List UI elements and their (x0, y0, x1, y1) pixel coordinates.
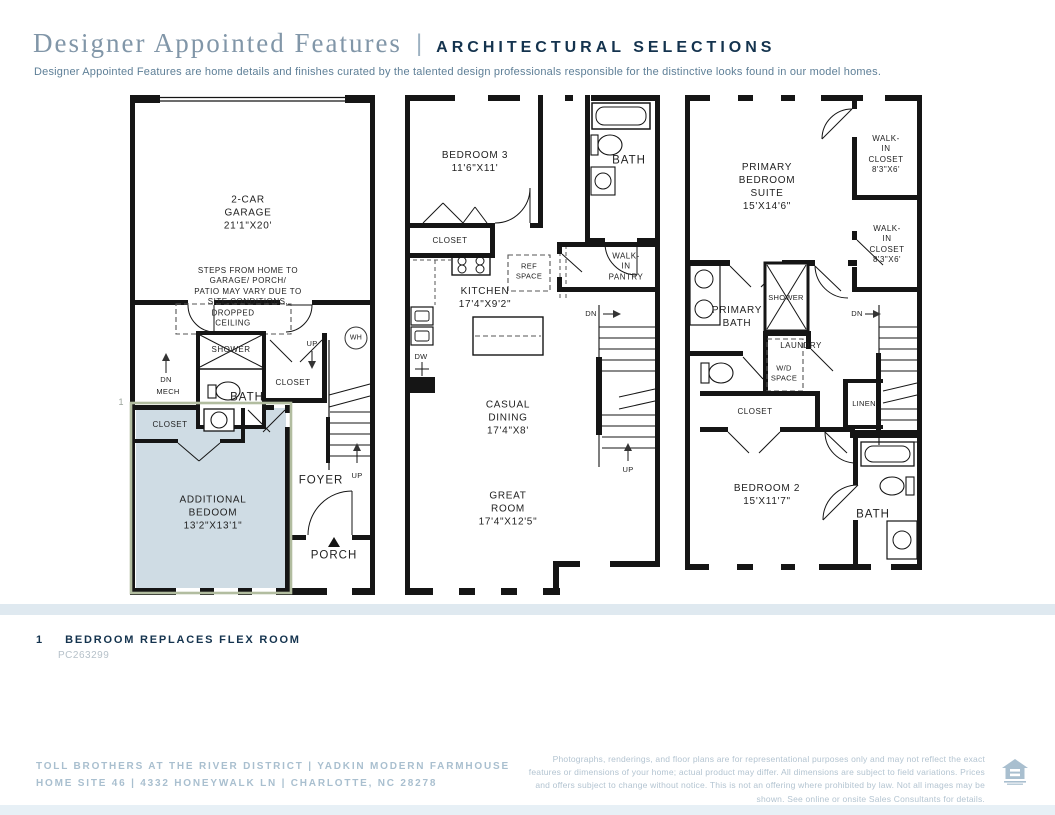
wd-space-label: W/D SPACE (771, 363, 797, 383)
bedroom3-label: BEDROOM 3 11'6"X11' (442, 149, 508, 175)
porch-label: PORCH (311, 549, 358, 564)
floor-plan-1: 1 2-CAR GARAGE 21'1"X20' STEPS FROM HOME… (130, 95, 375, 595)
great-room-label: GREAT ROOM 17'4"X12'5" (479, 490, 538, 529)
footer-address: TOLL BROTHERS AT THE RIVER DISTRICT | YA… (36, 758, 510, 792)
page: Designer Appointed Features | ARCHITECTU… (0, 0, 1055, 815)
walk-in-closet-1-label: WALK-IN CLOSET 8'3"X6' (868, 134, 904, 176)
closet-label: CLOSET (432, 236, 467, 246)
bottom-band (0, 805, 1055, 815)
mech-label: MECH (156, 387, 179, 397)
divider-band (0, 604, 1055, 615)
footer-line2: HOME SITE 46 | 4332 HONEYWALK LN | CHARL… (36, 775, 510, 792)
closet-hall-label: CLOSET (275, 378, 310, 388)
primary-bath-label: PRIMARY BATH (712, 304, 762, 330)
floor-plan-3: PRIMARY BEDROOM SUITE 15'X14'6" WALK-IN … (685, 95, 922, 570)
bath2-label: BATH (856, 508, 890, 523)
porch-entry-marker (328, 537, 340, 547)
up-stairs-label: UP (351, 471, 362, 481)
kitchen-label: KITCHEN 17'4"X9'2" (459, 285, 511, 311)
shower-label: SHOWER (768, 293, 804, 303)
casual-dining-label: CASUAL DINING 17'4"X8' (486, 399, 530, 438)
header-description: Designer Appointed Features are home det… (34, 66, 881, 78)
laundry-label: LAUNDRY (780, 341, 822, 351)
footnote-text: BEDROOM REPLACES FLEX ROOM (65, 634, 301, 646)
closet-bedroom-label: CLOSET (152, 420, 187, 430)
footnote: 1 BEDROOM REPLACES FLEX ROOM (36, 634, 301, 646)
up-label: UP (622, 465, 633, 475)
equal-housing-logo-icon (1000, 757, 1030, 791)
floor-plan-2: BEDROOM 3 11'6"X11' CLOSET BATH REF SPAC… (405, 95, 660, 595)
shower-label: SHOWER (212, 345, 251, 355)
dn-label: DN (585, 309, 596, 319)
up-top-label: UP (306, 339, 317, 349)
foyer-label: FOYER (299, 474, 344, 489)
header: Designer Appointed Features | ARCHITECTU… (33, 28, 775, 59)
garage-label: 2-CAR GARAGE 21'1"X20' (224, 194, 272, 233)
linen-label: LINEN (852, 399, 876, 409)
plan-code: PC263299 (58, 650, 109, 661)
ref-space-label: REF SPACE (516, 261, 542, 281)
option-marker-1: 1 (118, 397, 123, 407)
floor1-plan-drawing (130, 95, 375, 595)
dn-label: DN (851, 309, 862, 319)
dropped-ceiling-label: DROPPED CEILING (211, 309, 254, 330)
primary-suite-label: PRIMARY BEDROOM SUITE 15'X14'6" (739, 161, 796, 213)
dw-label: DW (414, 352, 427, 362)
additional-bedroom-label: ADDITIONAL BEDOOM 13'2"X13'1" (179, 494, 246, 533)
walk-in-closet-2-label: WALK-IN CLOSET 8'3"X6' (869, 224, 904, 266)
bath-label: BATH (230, 391, 264, 406)
steps-note: STEPS FROM HOME TO GARAGE/ PORCH/ PATIO … (185, 266, 312, 308)
bath-label: BATH (612, 154, 646, 169)
closet-label: CLOSET (737, 407, 772, 417)
water-heater-circle: WH (345, 327, 368, 350)
selections-label: ARCHITECTURAL SELECTIONS (436, 39, 775, 57)
footnote-number: 1 (36, 634, 43, 646)
footer-disclaimer: Photographs, renderings, and floor plans… (527, 753, 985, 806)
dn-label: DN (160, 375, 171, 385)
page-title: Designer Appointed Features (33, 28, 402, 59)
walk-in-pantry-label: WALK-IN PANTRY (609, 251, 644, 282)
title-separator: | (416, 30, 422, 58)
footer-line1: TOLL BROTHERS AT THE RIVER DISTRICT | YA… (36, 758, 510, 775)
bedroom2-label: BEDROOM 2 15'X11'7" (734, 482, 800, 508)
